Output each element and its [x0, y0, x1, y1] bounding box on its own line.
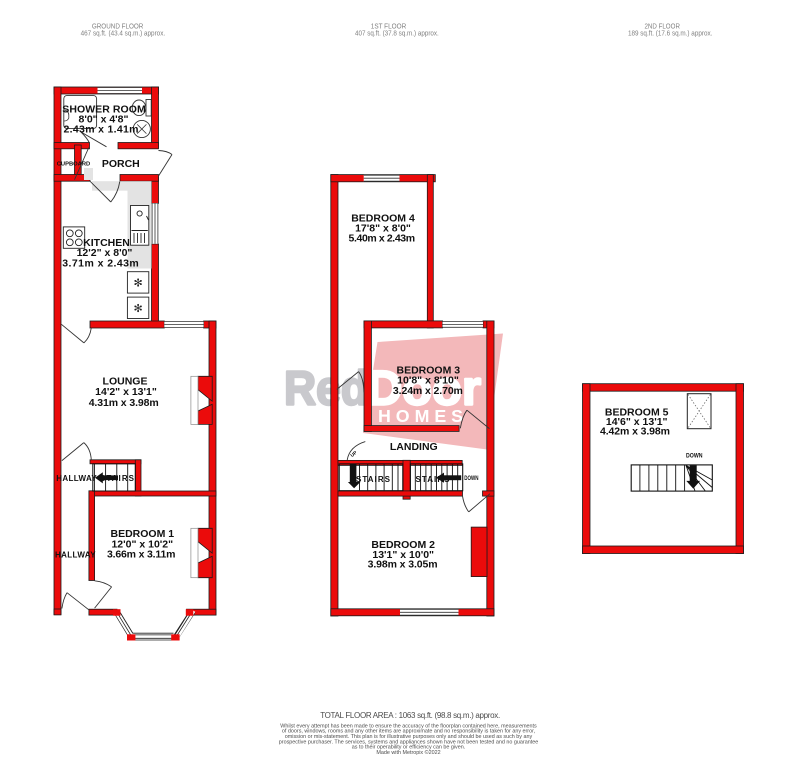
- svg-text:3.66m x 3.11m: 3.66m x 3.11m: [107, 549, 176, 561]
- svg-text:DOWN: DOWN: [464, 476, 478, 482]
- svg-text:4.31m x 3.98m: 4.31m x 3.98m: [89, 397, 159, 409]
- svg-text:HALLWAY: HALLWAY: [56, 474, 97, 483]
- svg-text:467 sq.ft. (43.4 sq.m.) approx: 467 sq.ft. (43.4 sq.m.) approx.: [81, 30, 166, 37]
- svg-text:✻: ✻: [133, 303, 142, 315]
- svg-text:CUPBOARD: CUPBOARD: [57, 162, 91, 168]
- svg-text:LANDING: LANDING: [390, 441, 438, 453]
- svg-text:Made with Metropix ©2022: Made with Metropix ©2022: [376, 749, 440, 756]
- svg-text:STAIRS: STAIRS: [416, 475, 451, 484]
- svg-text:TOTAL FLOOR AREA : 1063 sq.ft.: TOTAL FLOOR AREA : 1063 sq.ft. (98.8 sq.…: [320, 711, 500, 720]
- svg-text:3.71m x 2.43m: 3.71m x 2.43m: [62, 258, 139, 270]
- svg-text:Red: Red: [284, 363, 368, 416]
- svg-text:HALLWAY: HALLWAY: [55, 550, 96, 559]
- svg-text:407 sq.ft. (37.8 sq.m.) approx: 407 sq.ft. (37.8 sq.m.) approx.: [355, 30, 439, 37]
- svg-text:PORCH: PORCH: [102, 158, 140, 170]
- svg-text:STAIRS: STAIRS: [100, 474, 135, 483]
- svg-text:✻: ✻: [133, 278, 142, 290]
- svg-text:189 sq.ft. (17.6 sq.m.) approx: 189 sq.ft. (17.6 sq.m.) approx.: [628, 30, 713, 37]
- svg-text:2.43m x 1.41m: 2.43m x 1.41m: [64, 124, 139, 136]
- svg-text:5.40m x 2.43m: 5.40m x 2.43m: [349, 232, 416, 244]
- svg-text:H O M E S: H O M E S: [378, 406, 463, 426]
- svg-text:4.42m x 3.98m: 4.42m x 3.98m: [600, 426, 670, 438]
- svg-text:DOWN: DOWN: [686, 453, 703, 459]
- svg-text:3.98m x 3.05m: 3.98m x 3.05m: [368, 559, 438, 571]
- svg-text:3.24m x 2.70m: 3.24m x 2.70m: [393, 385, 463, 397]
- svg-text:STAIRS: STAIRS: [356, 475, 391, 484]
